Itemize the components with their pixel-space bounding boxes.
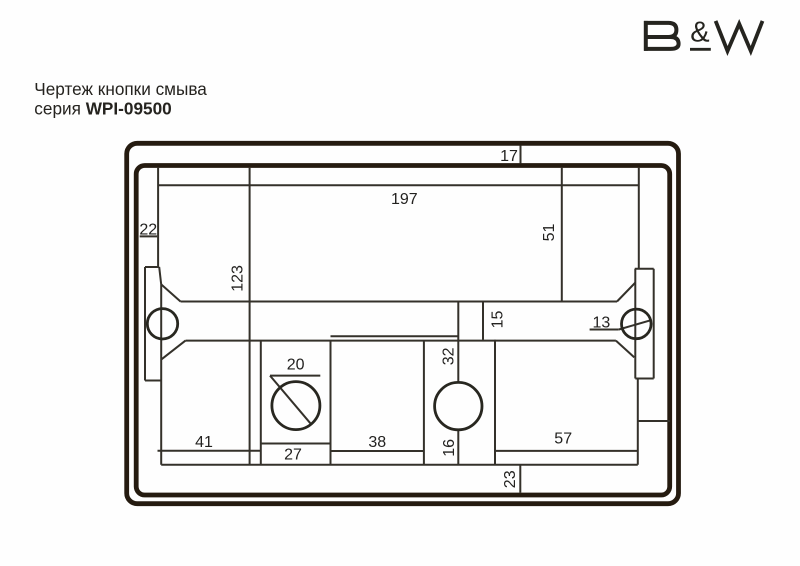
svg-text:32: 32 xyxy=(441,347,458,365)
svg-text:51: 51 xyxy=(541,224,558,242)
svg-text:17: 17 xyxy=(500,148,518,165)
svg-text:13: 13 xyxy=(593,315,611,332)
svg-text:123: 123 xyxy=(230,265,247,292)
svg-text:22: 22 xyxy=(139,222,157,239)
svg-text:57: 57 xyxy=(554,431,572,448)
svg-text:20: 20 xyxy=(287,357,305,374)
svg-text:16: 16 xyxy=(441,439,458,457)
svg-text:&: & xyxy=(690,16,709,48)
svg-text:41: 41 xyxy=(195,434,213,451)
svg-text:15: 15 xyxy=(489,311,506,329)
svg-text:серия WPI-09500: серия WPI-09500 xyxy=(34,98,171,118)
svg-text:23: 23 xyxy=(502,470,519,488)
svg-text:27: 27 xyxy=(284,446,302,463)
svg-text:197: 197 xyxy=(391,191,418,208)
svg-text:38: 38 xyxy=(368,434,386,451)
svg-text:Чертеж кнопки смыва: Чертеж кнопки смыва xyxy=(34,79,207,99)
